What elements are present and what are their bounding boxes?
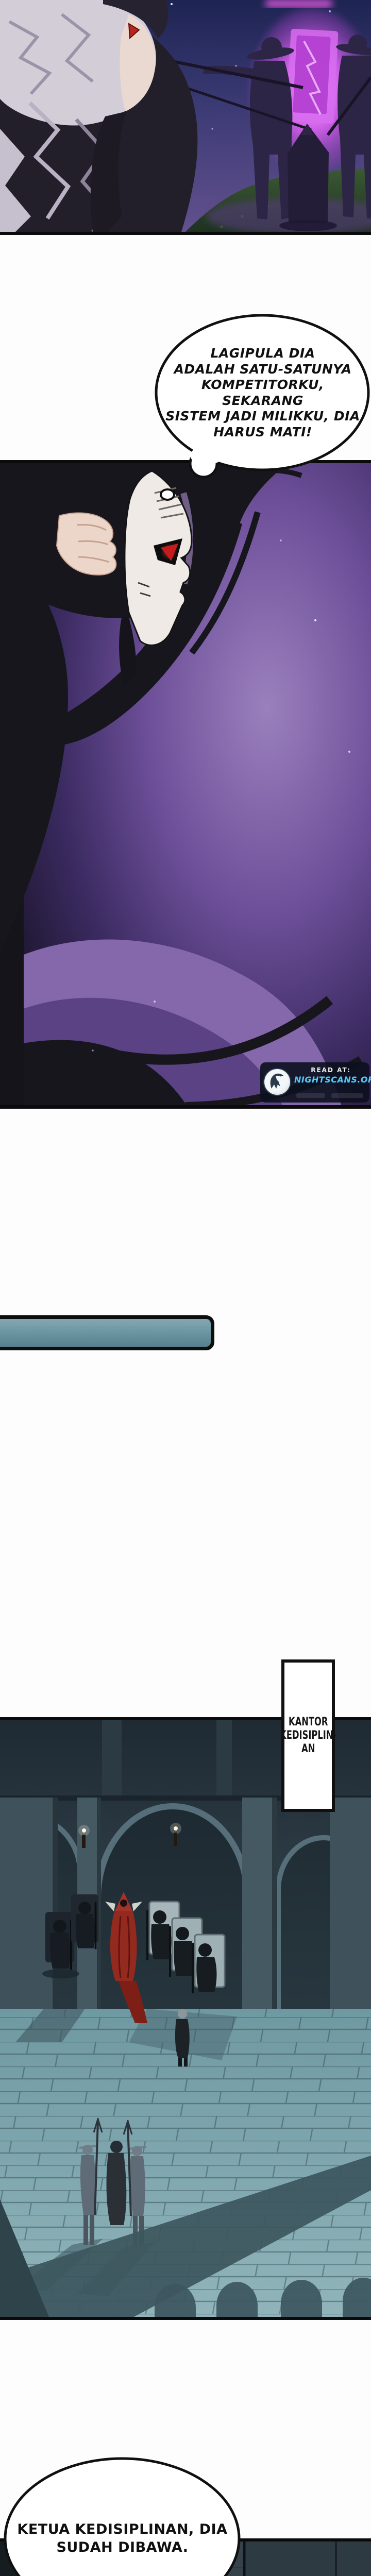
bubble2-line: KETUA KEDISIPLINAN, DIA xyxy=(17,2520,227,2538)
caption-kantor-kedisiplinan: KANTOR KEDISIPLIN- AN xyxy=(281,1659,335,1812)
speech-bubble-1-text: LAGIPULA DIA ADALAH SATU-SATUNYA KOMPETI… xyxy=(162,325,363,461)
watermark-badge: READ AT: NIGHTSCANS.ORG xyxy=(260,1062,369,1103)
hooded-figure-icon xyxy=(263,1068,291,1096)
bubble1-line: LAGIPULA DIA xyxy=(210,346,315,362)
bubble1-line: ADALAH SATU-SATUNYA xyxy=(174,362,352,378)
watermark-site: NIGHTSCANS.ORG xyxy=(294,1075,367,1084)
caption-line: AN xyxy=(301,1742,315,1756)
seated-figure-left xyxy=(71,1894,98,1949)
watermark-read-at: READ AT: xyxy=(294,1066,367,1074)
watermark-sub-badge xyxy=(331,1093,363,1098)
bubble1-line: HARUS MATI! xyxy=(213,425,312,440)
speech-bubble-2-text: KETUA KEDISIPLINAN, DIA SUDAH DIBAWA. xyxy=(15,2492,229,2576)
escort-prisoner xyxy=(107,2141,127,2225)
watermark-sub-badge xyxy=(296,1093,325,1098)
bubble-tail-dot xyxy=(161,489,174,500)
panel-night-scene xyxy=(0,0,371,235)
caption-line: KANTOR xyxy=(289,1716,328,1729)
bubble1-line: KOMPETITORKU, SEKARANG xyxy=(162,377,363,409)
bubble2-line: SUDAH DIBAWA. xyxy=(56,2538,188,2556)
night-scene-art xyxy=(0,0,371,232)
comic-page: READ AT: NIGHTSCANS.ORG LAGIPULA DIA ADA… xyxy=(0,0,371,2576)
panel-masked-figure xyxy=(0,460,371,1109)
scene-transition-bar xyxy=(0,1315,214,1350)
masked-figure-art xyxy=(0,463,371,1105)
bubble1-line: SISTEM JADI MILIKKU, DIA xyxy=(165,409,360,425)
caption-line: KEDISIPLIN- xyxy=(280,1729,336,1742)
seated-figure-right xyxy=(193,1935,225,1993)
